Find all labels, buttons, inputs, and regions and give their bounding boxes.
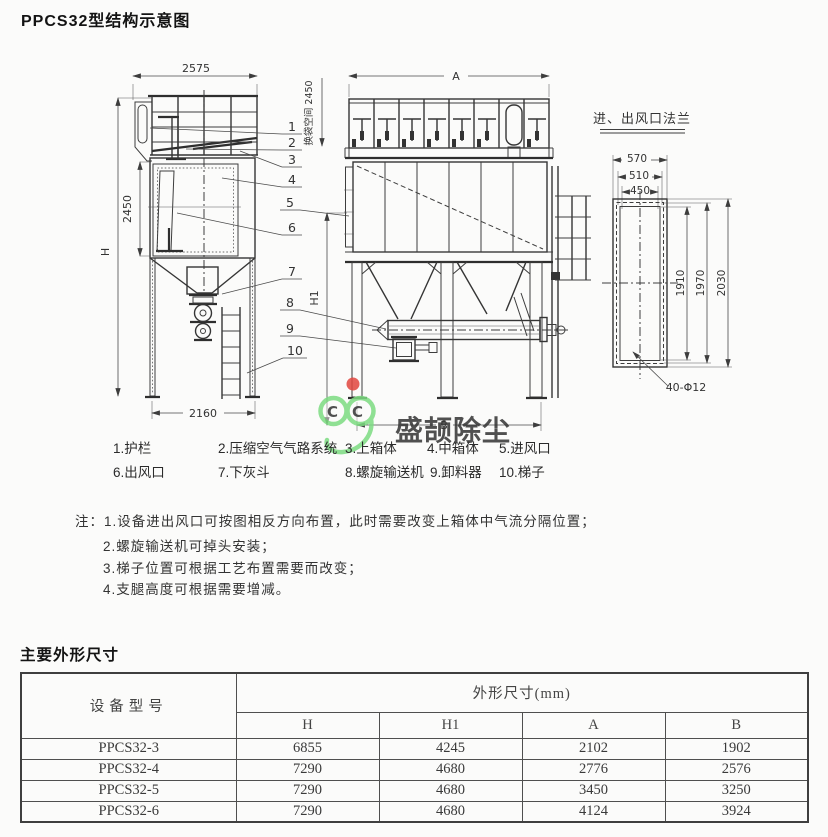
callout-10: 10 <box>287 343 303 358</box>
dimensions-table: 设备型号 外形尺寸(mm) H H1 A B PPCS32-3 6855 424… <box>20 672 809 823</box>
callout-8: 8 <box>286 295 294 310</box>
legend-item-6: 6.出风口 <box>113 461 165 481</box>
table-row: PPCS32-5 7290 4680 3450 3250 <box>21 780 808 801</box>
callout-9: 9 <box>286 321 294 336</box>
watermark-letter-1: C <box>327 403 338 421</box>
bolt-note-label: 40-Φ12 <box>666 381 707 394</box>
dim-2575-label: 2575 <box>182 62 210 75</box>
dim-570-label: 570 <box>627 153 647 165</box>
dim-1910-label: 1910 <box>675 270 687 297</box>
legend-item-1: 1.护栏 <box>113 437 151 457</box>
callout-6: 6 <box>288 220 296 235</box>
callout-1: 1 <box>288 119 296 134</box>
dim-2450-label: 2450 <box>121 195 134 223</box>
document-page: PPCS32型结构示意图 H 2575 <box>0 0 828 837</box>
model-cell: PPCS32-3 <box>21 738 236 759</box>
legend-item-10: 10.梯子 <box>499 461 545 481</box>
dim-2030-label: 2030 <box>716 270 728 297</box>
front-view: A 换袋空间 2450 H1 <box>303 70 591 432</box>
dim-1970-label: 1970 <box>695 270 707 297</box>
note-line-3: 3.梯子位置可根据工艺布置需要而改变； <box>103 557 363 577</box>
model-cell: PPCS32-6 <box>21 801 236 822</box>
specs-section-title: 主要外形尺寸 <box>20 643 119 665</box>
flange-title: 进、出风口法兰 <box>593 112 691 127</box>
table-row: PPCS32-4 7290 4680 2776 2576 <box>21 759 808 780</box>
legend-item-3: 3.上箱体 <box>345 437 397 457</box>
left-view: H 2575 2450 <box>99 62 260 420</box>
model-cell: PPCS32-4 <box>21 759 236 780</box>
dim-H1-label: H1 <box>308 290 321 305</box>
model-column-header: 设备型号 <box>21 673 236 738</box>
dim-A-label: A <box>452 70 460 83</box>
dim-510-label: 510 <box>629 170 649 182</box>
legend-item-9: 9.卸料器 <box>430 461 482 481</box>
callout-5: 5 <box>286 195 294 210</box>
table-row: PPCS32-6 7290 4680 4124 3924 <box>21 801 808 822</box>
table-header-row-1: 设备型号 外形尺寸(mm) <box>21 673 808 712</box>
note-line-2: 2.螺旋输送机可掉头安装； <box>103 535 276 555</box>
table-row: PPCS32-3 6855 4245 2102 1902 <box>21 738 808 759</box>
legend-item-8: 8.螺旋输送机 <box>345 461 424 481</box>
dim-2160-label: 2160 <box>189 407 217 420</box>
callout-2: 2 <box>288 135 296 150</box>
technical-drawing: H 2575 2450 <box>0 0 828 475</box>
col-header-H: H <box>236 712 379 738</box>
note-line-4: 4.支腿高度可根据需要增减。 <box>103 578 290 598</box>
note-line-1: 注：1.设备进出风口可按图相反方向布置，此时需要改变上箱体中气流分隔位置； <box>75 510 596 530</box>
legend-item-7: 7.下灰斗 <box>218 461 270 481</box>
legend-item-5: 5.进风口 <box>499 437 551 457</box>
note-prefix: 注： <box>75 514 104 529</box>
legend-item-2: 2.压缩空气气路系统 <box>218 437 337 457</box>
flange-view: 进、出风口法兰 570 510 450 1910 1970 2 <box>593 112 732 394</box>
col-header-B: B <box>665 712 808 738</box>
logo-red-dot <box>347 378 360 391</box>
dimensions-group-header: 外形尺寸(mm) <box>236 673 808 712</box>
model-cell: PPCS32-5 <box>21 780 236 801</box>
legend-item-4: 4.中箱体 <box>427 437 479 457</box>
watermark-letter-2: C <box>352 403 363 421</box>
callout-7: 7 <box>288 264 296 279</box>
dim-H-label: H <box>99 248 112 256</box>
col-header-A: A <box>522 712 665 738</box>
dim-bagspace-label: 换袋空间 2450 <box>303 80 315 145</box>
callout-3: 3 <box>288 152 296 167</box>
callout-4: 4 <box>288 172 296 187</box>
col-header-H1: H1 <box>379 712 522 738</box>
